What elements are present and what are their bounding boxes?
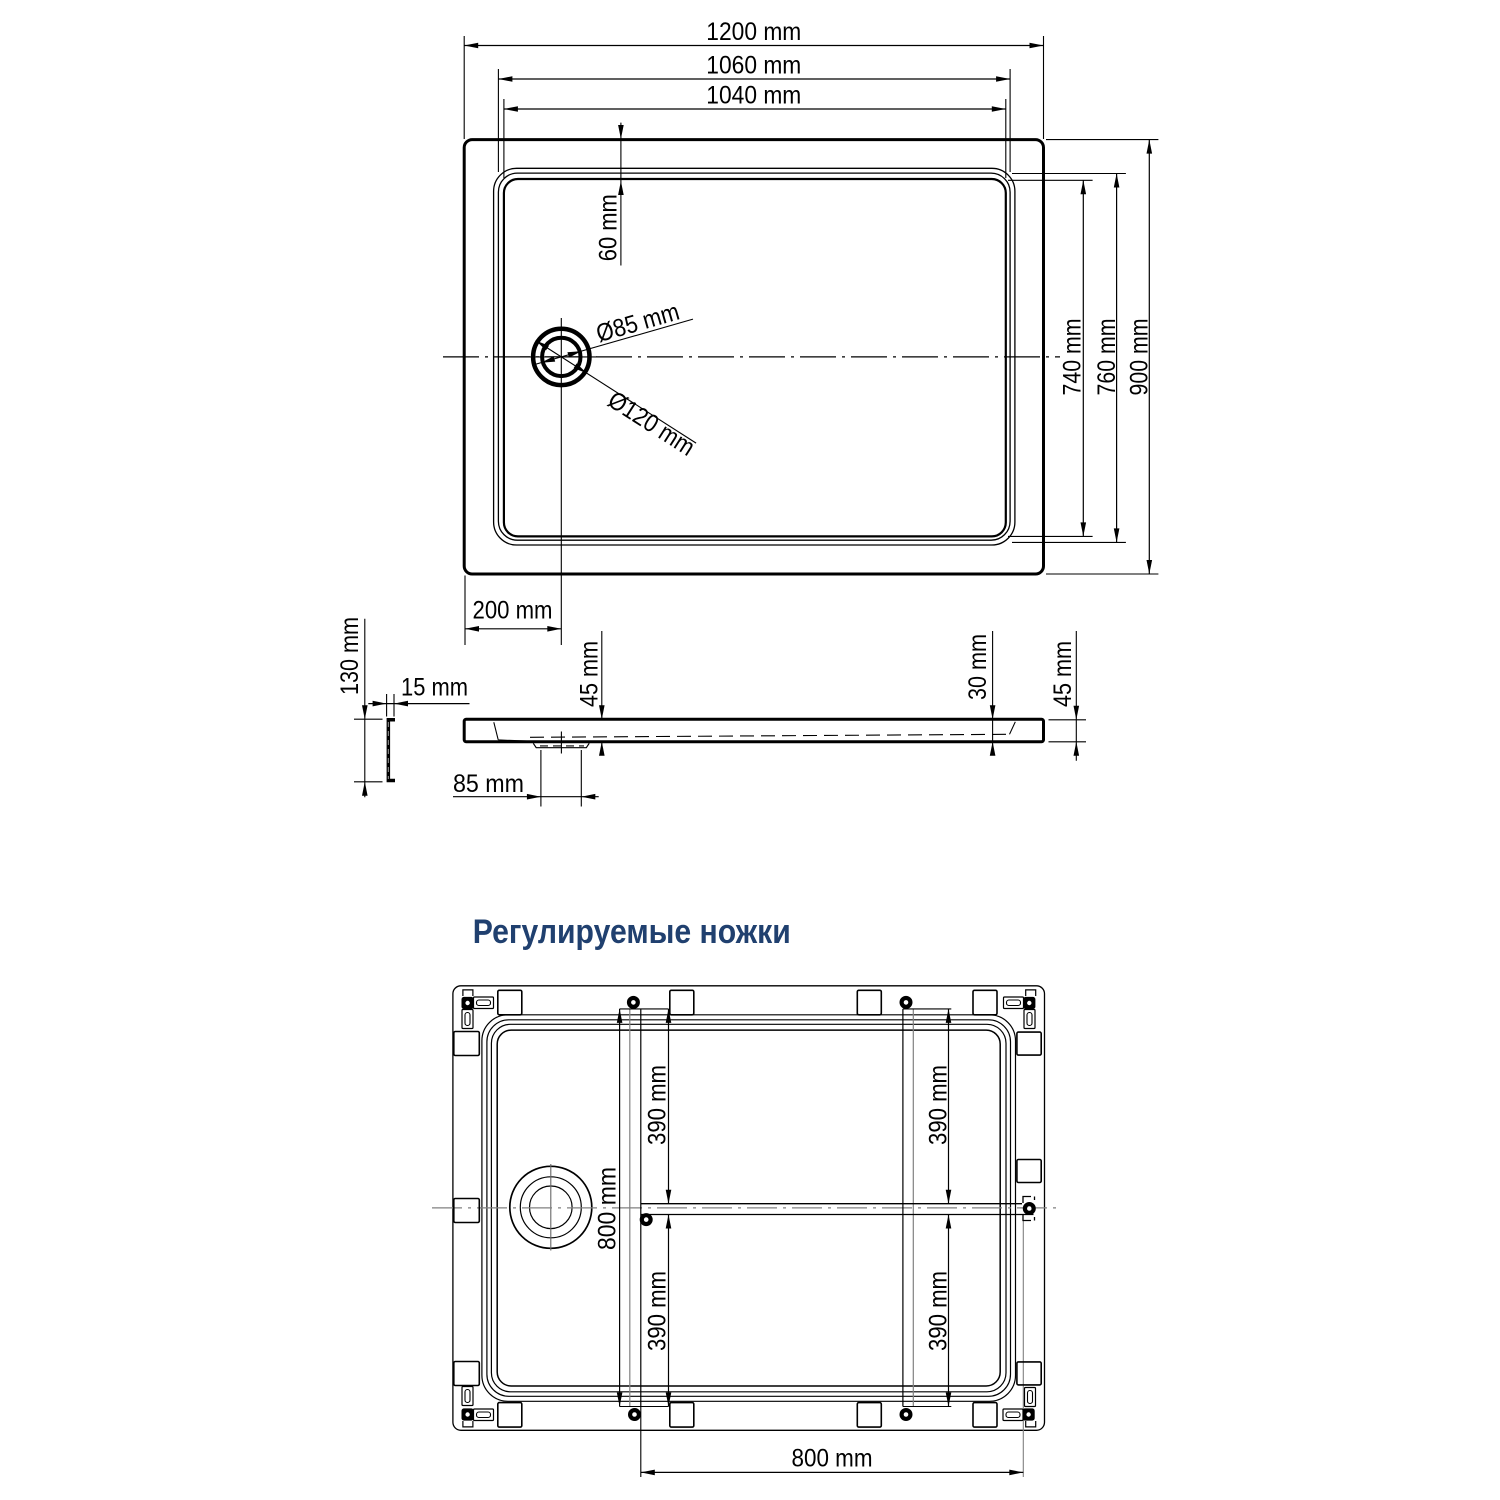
svg-text:130 mm: 130 mm	[336, 617, 364, 695]
svg-text:390 mm: 390 mm	[643, 1271, 671, 1351]
svg-text:45 mm: 45 mm	[1049, 641, 1077, 707]
svg-text:390 mm: 390 mm	[924, 1271, 952, 1351]
svg-text:740 mm: 740 mm	[1059, 319, 1087, 396]
svg-text:1040 mm: 1040 mm	[706, 82, 801, 110]
svg-text:85 mm: 85 mm	[453, 770, 524, 798]
svg-text:1060 mm: 1060 mm	[706, 52, 801, 80]
svg-text:45 mm: 45 mm	[576, 641, 604, 707]
svg-text:1200 mm: 1200 mm	[706, 18, 801, 46]
svg-text:390 mm: 390 mm	[643, 1065, 671, 1145]
svg-text:800 mm: 800 mm	[594, 1167, 622, 1250]
svg-text:Регулируемые ножки: Регулируемые ножки	[473, 913, 791, 951]
svg-text:760 mm: 760 mm	[1093, 319, 1121, 396]
svg-text:30 mm: 30 mm	[964, 634, 992, 700]
svg-text:60 mm: 60 mm	[594, 194, 622, 261]
svg-text:900 mm: 900 mm	[1126, 319, 1154, 396]
svg-text:15 mm: 15 mm	[401, 674, 468, 702]
svg-text:390 mm: 390 mm	[924, 1065, 952, 1145]
svg-text:200 mm: 200 mm	[473, 597, 553, 625]
svg-text:800 mm: 800 mm	[792, 1445, 873, 1473]
